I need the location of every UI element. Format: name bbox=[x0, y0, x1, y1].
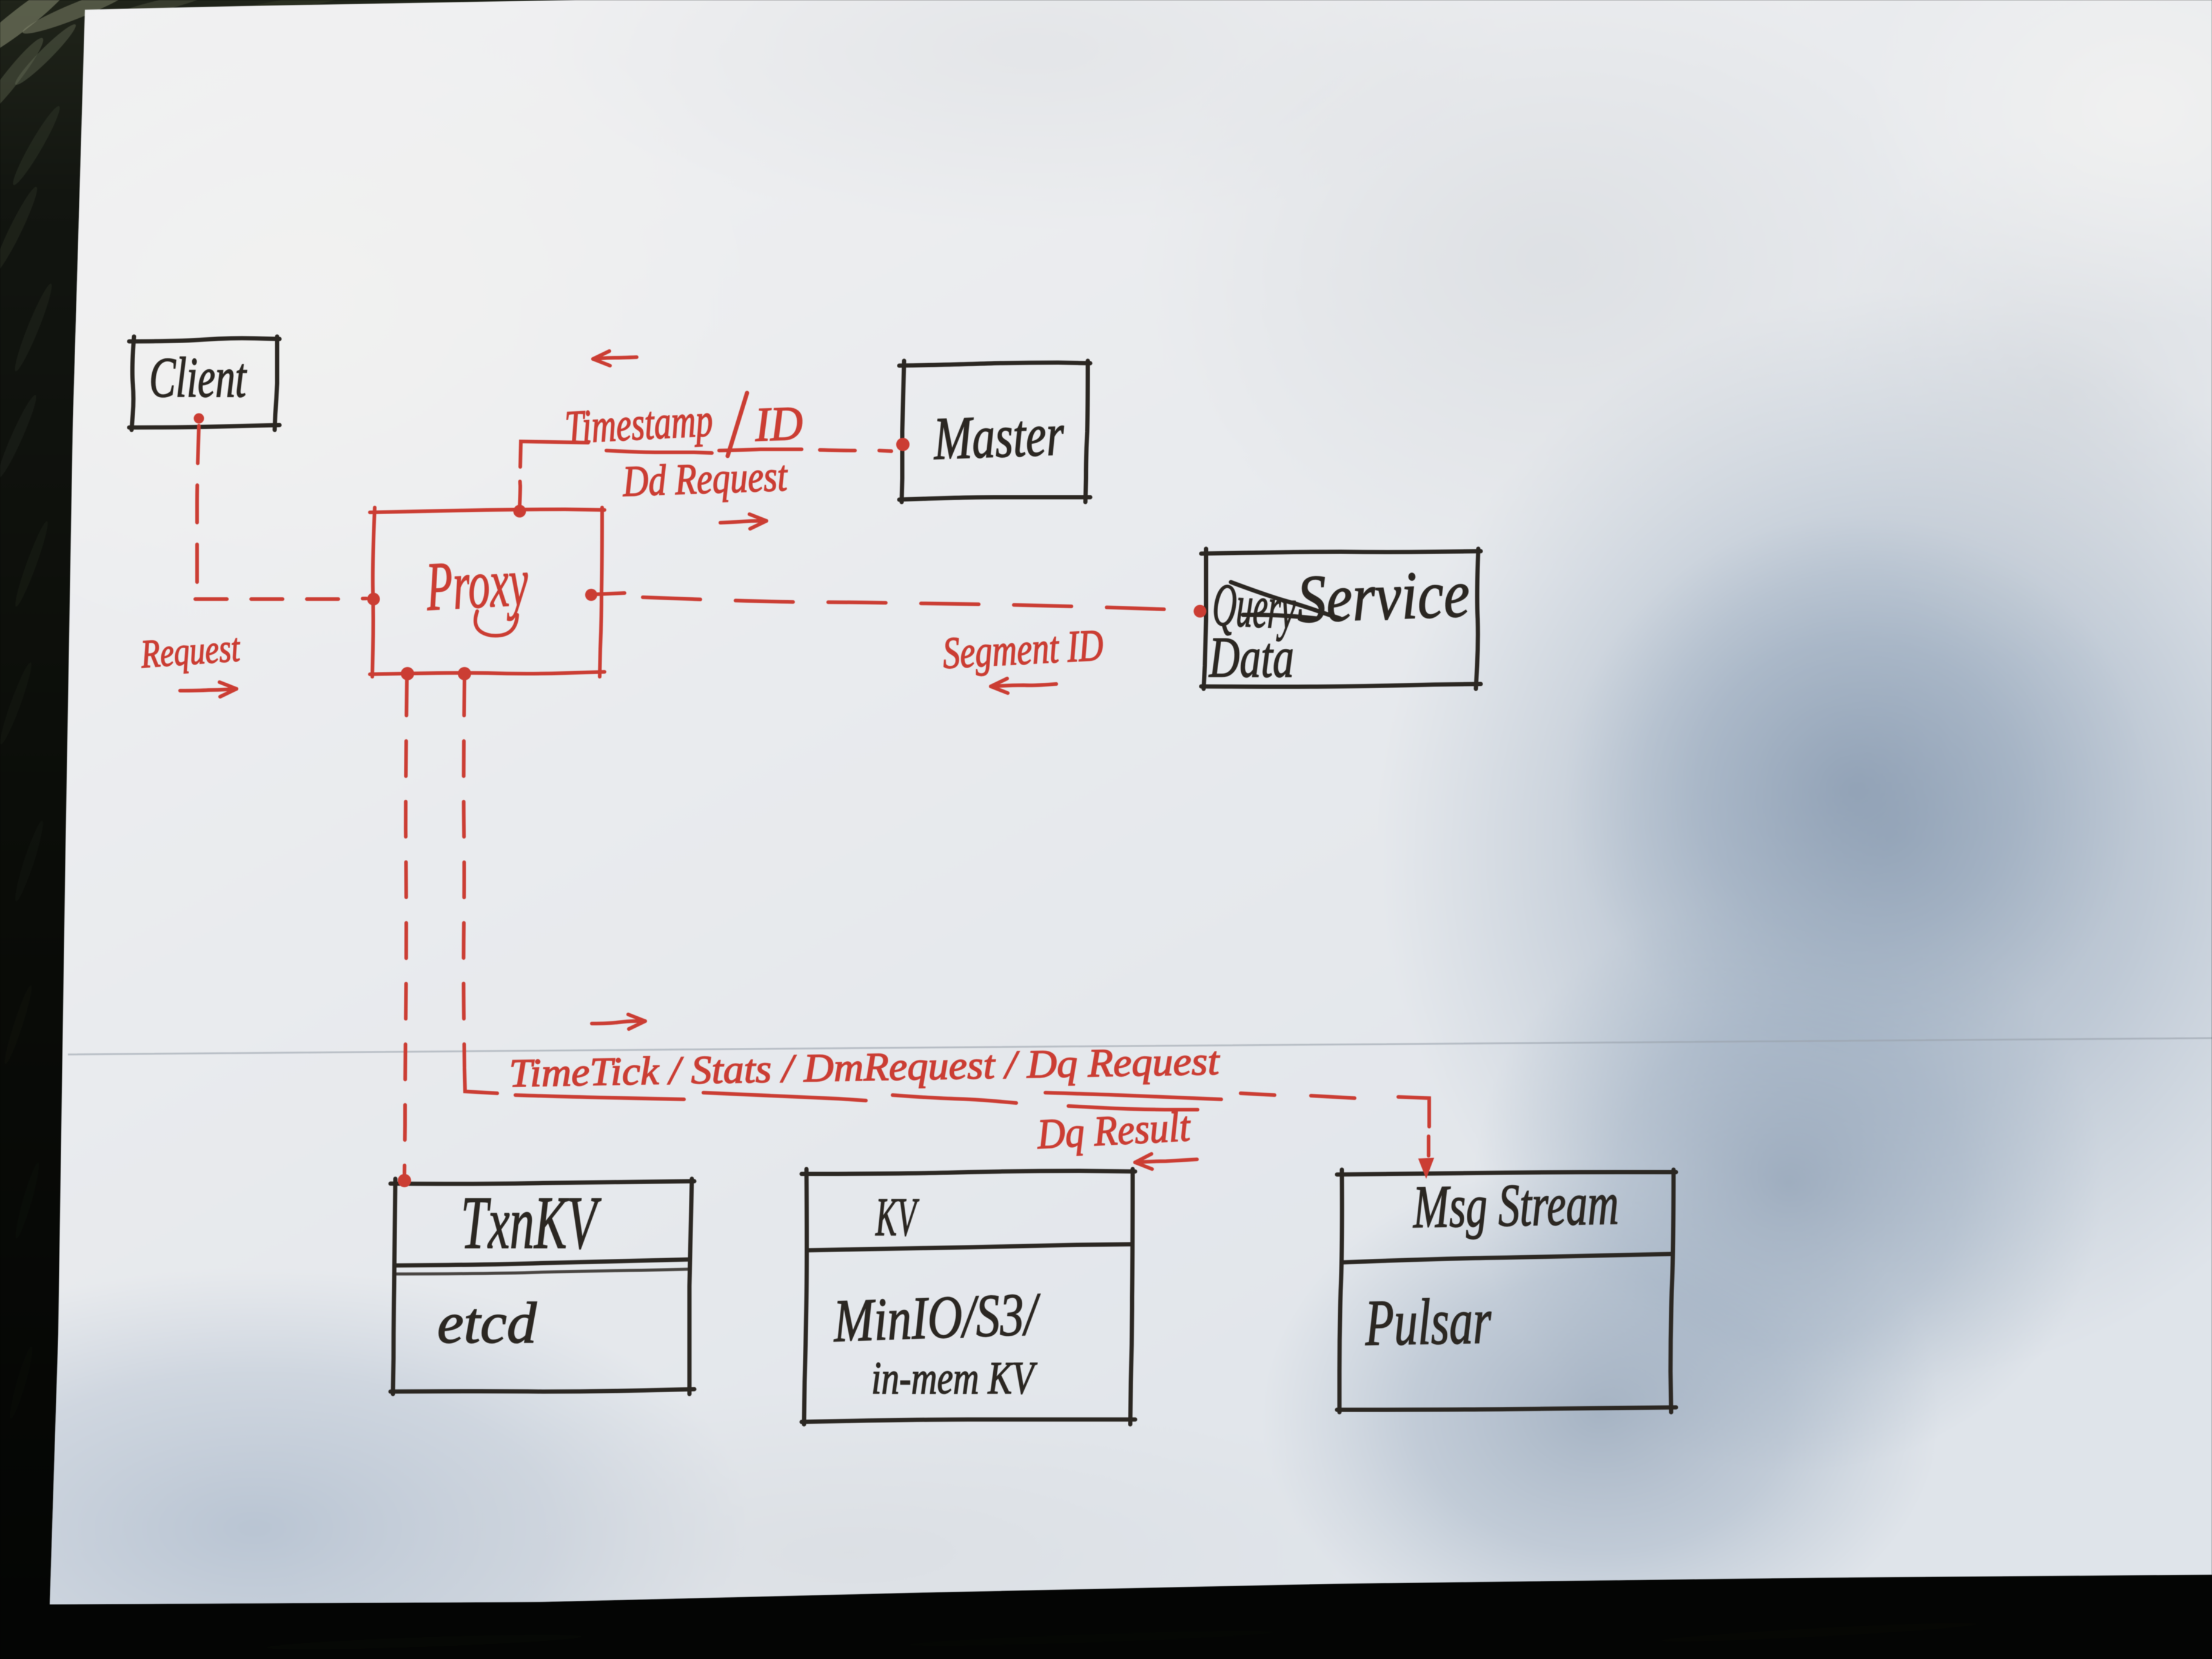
svg-text:Data: Data bbox=[1208, 625, 1294, 689]
svg-text:etcd: etcd bbox=[437, 1290, 537, 1355]
svg-text:Segment ID: Segment ID bbox=[942, 620, 1105, 679]
svg-text:Pulsar: Pulsar bbox=[1364, 1285, 1492, 1359]
svg-text:Request: Request bbox=[139, 626, 242, 677]
svg-text:TxnKV: TxnKV bbox=[461, 1181, 602, 1264]
svg-text:Dd Request: Dd Request bbox=[622, 452, 789, 506]
svg-text:in-mem KV: in-mem KV bbox=[871, 1353, 1037, 1404]
svg-text:Service: Service bbox=[1296, 556, 1471, 637]
svg-text:Master: Master bbox=[931, 401, 1065, 473]
svg-text:Timestamp: Timestamp bbox=[563, 393, 714, 454]
svg-text:KV: KV bbox=[875, 1187, 919, 1247]
svg-text:MinIO/S3/: MinIO/S3/ bbox=[831, 1280, 1042, 1355]
svg-text:Client: Client bbox=[149, 346, 247, 409]
svg-text:Msg Stream: Msg Stream bbox=[1412, 1170, 1619, 1241]
svg-text:Dq Result: Dq Result bbox=[1036, 1104, 1192, 1158]
svg-text:ID: ID bbox=[754, 397, 804, 452]
